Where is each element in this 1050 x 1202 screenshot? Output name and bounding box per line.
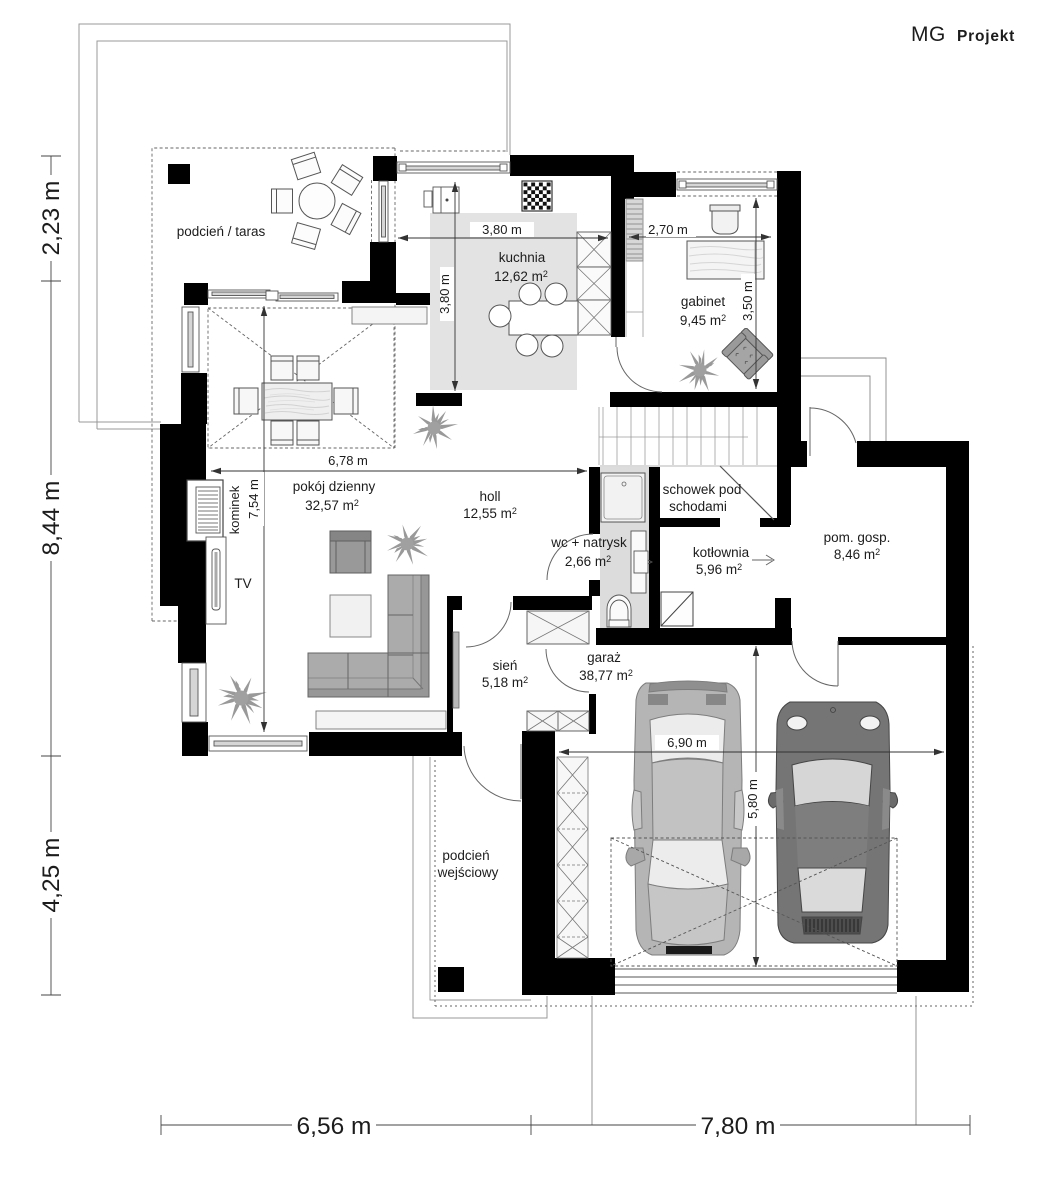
svg-text:wejściowy: wejściowy: [437, 865, 499, 880]
svg-text:9,45 m2: 9,45 m2: [680, 313, 726, 328]
svg-text:38,77 m2: 38,77 m2: [579, 668, 633, 683]
svg-text:kominek: kominek: [227, 485, 242, 534]
svg-text:2,23 m: 2,23 m: [38, 181, 65, 256]
svg-text:pokój dzienny: pokój dzienny: [293, 479, 376, 494]
svg-text:3,80 m: 3,80 m: [437, 274, 452, 314]
svg-text:gabinet: gabinet: [681, 294, 726, 309]
svg-text:sień: sień: [493, 658, 518, 673]
svg-text:32,57 m2: 32,57 m2: [305, 498, 359, 513]
svg-text:3,50 m: 3,50 m: [740, 281, 755, 321]
svg-text:7,54 m: 7,54 m: [246, 479, 261, 519]
svg-text:5,80 m: 5,80 m: [745, 779, 760, 819]
svg-text:podcień: podcień: [442, 848, 489, 863]
svg-text:6,56 m: 6,56 m: [297, 1113, 372, 1140]
svg-text:TV: TV: [234, 576, 251, 591]
svg-text:pom. gosp.: pom. gosp.: [824, 530, 891, 545]
svg-text:12,55 m2: 12,55 m2: [463, 506, 517, 521]
svg-text:12,62 m2: 12,62 m2: [494, 269, 548, 284]
svg-text:5,96 m2: 5,96 m2: [696, 562, 742, 577]
svg-text:MG: MG: [911, 23, 946, 46]
svg-text:8,46 m2: 8,46 m2: [834, 547, 880, 562]
svg-text:Projekt: Projekt: [957, 28, 1015, 45]
svg-text:kotłownia: kotłownia: [693, 545, 750, 560]
svg-text:7,80 m: 7,80 m: [701, 1113, 776, 1140]
svg-text:garaż: garaż: [587, 650, 621, 665]
svg-text:holl: holl: [479, 489, 500, 504]
svg-text:6,78 m: 6,78 m: [328, 453, 368, 468]
svg-text:4,25 m: 4,25 m: [38, 838, 65, 913]
svg-text:3,80 m: 3,80 m: [482, 222, 522, 237]
svg-text:5,18 m2: 5,18 m2: [482, 675, 528, 690]
svg-text:kuchnia: kuchnia: [499, 250, 546, 265]
svg-text:6,90 m: 6,90 m: [667, 735, 707, 750]
svg-text:2,66 m2: 2,66 m2: [565, 554, 611, 569]
svg-text:schowek pod: schowek pod: [663, 482, 742, 497]
svg-text:podcień / taras: podcień / taras: [177, 224, 266, 239]
svg-text:8,44 m: 8,44 m: [38, 481, 65, 556]
svg-text:wc + natrysk: wc + natrysk: [550, 535, 627, 550]
svg-text:2,70 m: 2,70 m: [648, 222, 688, 237]
svg-text:schodami: schodami: [669, 499, 727, 514]
